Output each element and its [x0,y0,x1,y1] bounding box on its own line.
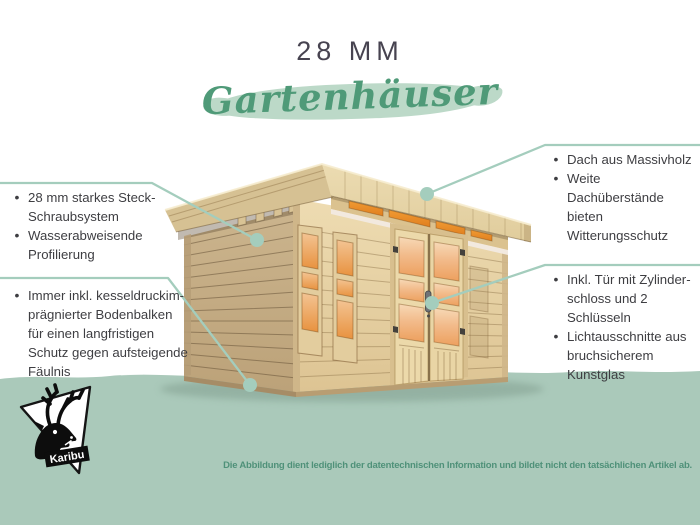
front-window-right [333,232,357,363]
disclaimer-text: Die Abbildung dient lediglich der datent… [223,460,692,471]
front-window-left [298,225,322,356]
feature-item: Inkl. Tür mit Zylinder- schloss und 2 Sc… [549,270,700,327]
page-title: 28 MM [0,36,700,67]
callout-dot-door [425,296,439,310]
feature-text: Immer inkl. kesseldruckim- prägnierter B… [24,286,192,381]
bullet-icon [10,286,24,381]
karibu-logo: Karibu [5,377,115,487]
feature-list-left-bottom: Immer inkl. kesseldruckim- prägnierter B… [10,286,192,381]
bullet-icon [10,188,24,226]
feature-item: Wasserabweisende Profilierung [10,226,182,264]
feature-list-left-top: 28 mm starkes Steck- Schraubsystem Wasse… [10,188,182,264]
feature-item: Lichtausschnitte aus bruchsicherem Kunst… [549,327,700,384]
callout-dot-roof [420,187,434,201]
feature-item: 28 mm starkes Steck- Schraubsystem [10,188,182,226]
feature-item: Immer inkl. kesseldruckim- prägnierter B… [10,286,192,381]
callout-dot-walls [250,233,264,247]
feature-text: Inkl. Tür mit Zylinder- schloss und 2 Sc… [563,270,700,327]
bullet-icon [549,270,563,327]
bullet-icon [549,327,563,384]
bullet-icon [549,169,563,245]
feature-text: Weite Dachüberstände bieten Witterungssc… [563,169,699,245]
callout-dot-base [243,378,257,392]
feature-list-right-top: Dach aus Massivholz Weite Dachüberstände… [549,150,699,245]
feature-item: Weite Dachüberstände bieten Witterungssc… [549,169,699,245]
bullet-icon [549,150,563,169]
feature-text: Wasserabweisende Profilierung [24,226,182,264]
feature-text: 28 mm starkes Steck- Schraubsystem [24,188,182,226]
feature-list-right-bottom: Inkl. Tür mit Zylinder- schloss und 2 Sc… [549,270,700,384]
feature-text: Lichtausschnitte aus bruchsicherem Kunst… [563,327,700,384]
page: 28 MM Gartenhäuser 28 mm starkes Steck- … [0,0,700,525]
shed-left-wall [178,201,305,392]
feature-text: Dach aus Massivholz [563,150,699,169]
bullet-icon [10,226,24,264]
feature-item: Dach aus Massivholz [549,150,699,169]
